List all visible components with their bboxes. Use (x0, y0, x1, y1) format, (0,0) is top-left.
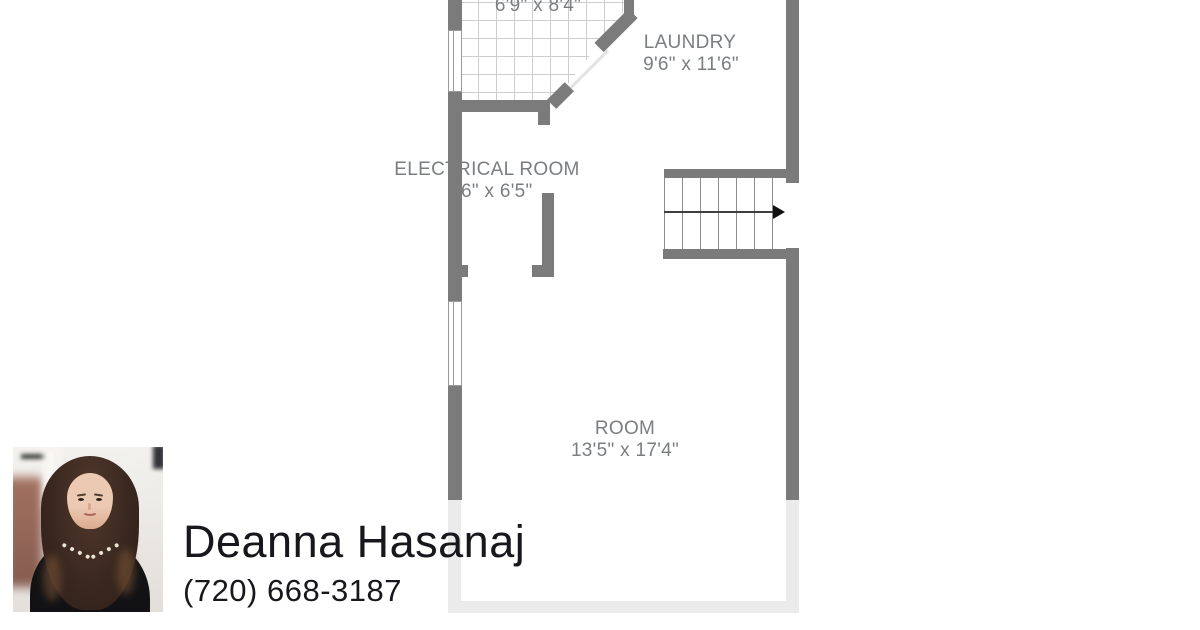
room-label-top-room-dims: 6'9" x 8'4" (495, 0, 581, 17)
stairs-direction-arrow-icon (773, 205, 785, 219)
window-frame-icon (153, 447, 163, 469)
wall-left-bottom (448, 386, 462, 500)
stair-treads (664, 178, 773, 249)
wall-electrical-bottom-left (448, 265, 468, 277)
room-label-electrical: ELECTRICAL ROOM (394, 159, 579, 181)
share-card: 6'9" x 8'4" LAUNDRY 9'6" x 11'6" ELECTRI… (0, 0, 1200, 630)
wall-left-mid (448, 91, 462, 277)
room-label-laundry-dims: 9'6" x 11'6" (643, 54, 739, 76)
portrait-smile (82, 507, 98, 516)
wall-electrical-bottom-right (532, 265, 554, 277)
portrait-eye (78, 498, 84, 501)
agent-name: Deanna Hasanaj (183, 517, 525, 567)
window-room (448, 301, 462, 386)
portrait-hair-highlight (43, 555, 61, 601)
wall-tiled-room-bottom (448, 100, 550, 112)
wall-left-lower (448, 277, 462, 301)
agent-photo (13, 447, 163, 612)
wall-right-faded (786, 500, 799, 602)
room-label-room: ROOM (595, 418, 655, 440)
portrait-hair-highlight (117, 549, 135, 595)
stairs-direction-arrow-line (664, 211, 774, 213)
wall-stairs-top (664, 169, 786, 178)
portrait-eye (96, 498, 102, 501)
room-label-room-dims: 13'5" x 17'4" (571, 440, 679, 462)
room-label-laundry: LAUNDRY (644, 32, 737, 54)
wall-stub-electrical-top (538, 112, 550, 125)
wall-right-bottom (786, 248, 799, 500)
wall-stairs-bottom (663, 249, 786, 259)
wall-left-top (448, 0, 462, 30)
portrait-face (67, 473, 113, 529)
wall-bottom-faded (448, 601, 799, 613)
window-tiled-room (448, 30, 462, 92)
room-label-electrical-dims: 6" x 6'5" (461, 181, 533, 203)
wall-electrical-right (542, 193, 554, 265)
wall-right-top (786, 0, 799, 183)
agent-phone: (720) 668-3187 (183, 574, 402, 608)
